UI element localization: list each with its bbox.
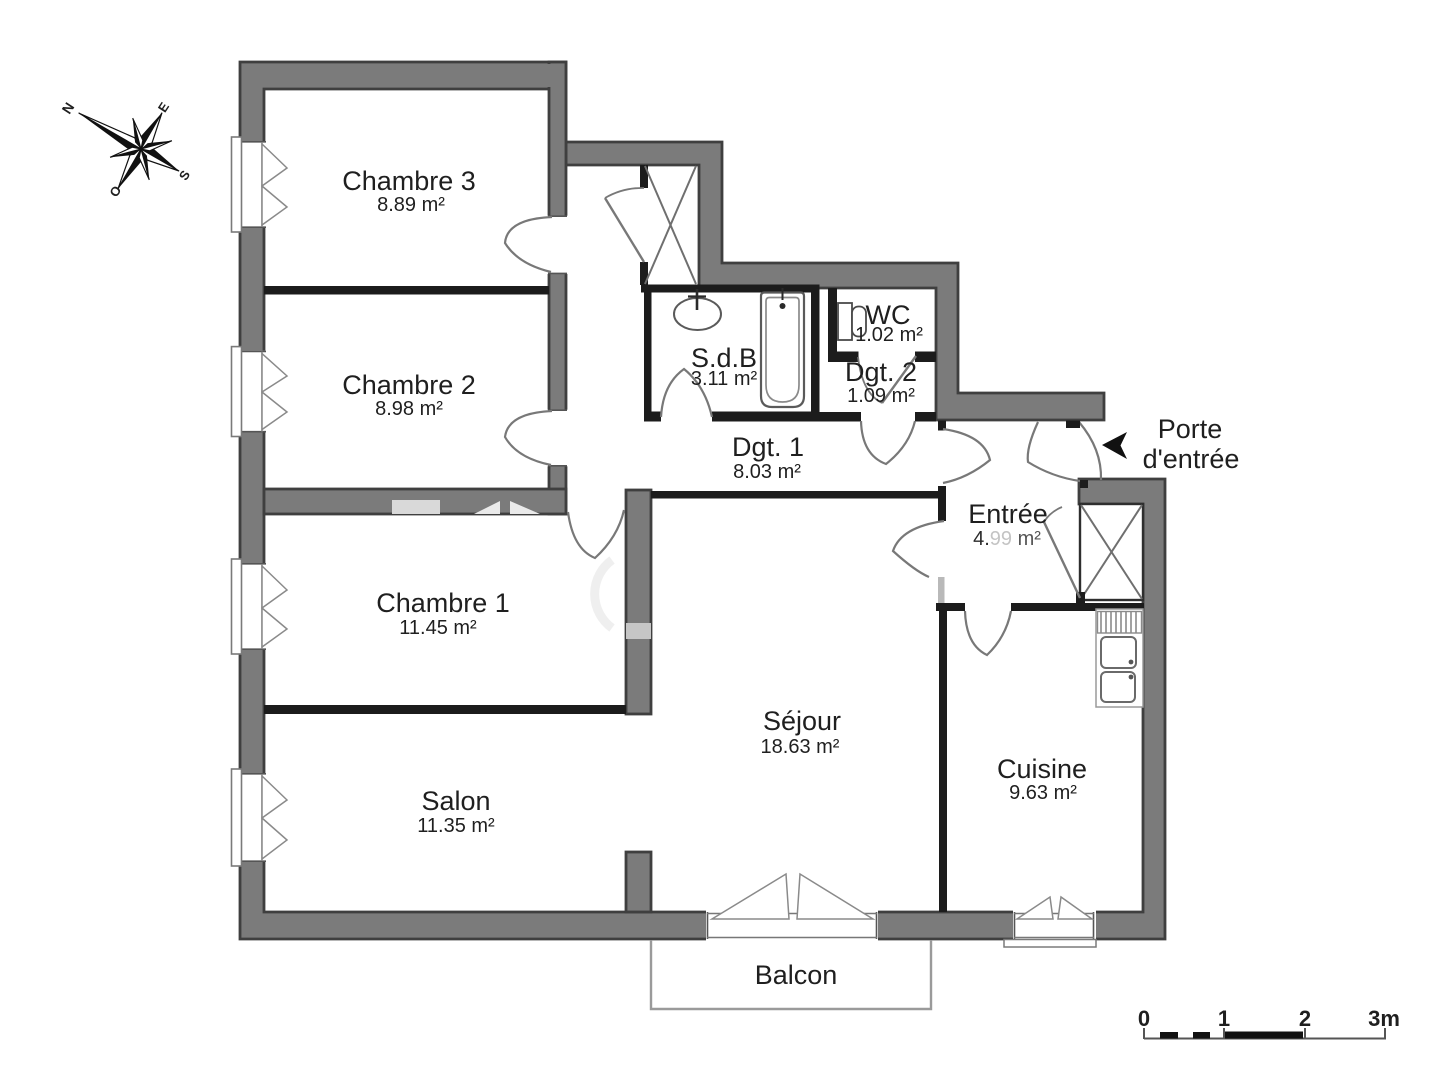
svg-text:3.11 m²: 3.11 m² xyxy=(691,368,758,390)
svg-text:11.35 m²: 11.35 m² xyxy=(417,815,495,837)
svg-text:Chambre 2: Chambre 2 xyxy=(342,370,476,400)
svg-text:Dgt. 1: Dgt. 1 xyxy=(732,432,804,462)
svg-text:Cuisine: Cuisine xyxy=(997,754,1087,784)
svg-text:Porte: Porte xyxy=(1158,414,1223,444)
svg-text:Entrée: Entrée xyxy=(968,499,1048,529)
svg-text:8.89 m²: 8.89 m² xyxy=(377,194,445,216)
svg-text:d'entrée: d'entrée xyxy=(1143,444,1240,474)
svg-text:18.63 m²: 18.63 m² xyxy=(761,736,840,758)
svg-text:4.99 m²: 4.99 m² xyxy=(973,528,1041,550)
svg-text:Séjour: Séjour xyxy=(763,706,841,736)
svg-text:Chambre 3: Chambre 3 xyxy=(342,166,476,196)
svg-text:1.02 m²: 1.02 m² xyxy=(855,324,923,346)
svg-text:2: 2 xyxy=(1299,1006,1311,1031)
svg-text:8.98 m²: 8.98 m² xyxy=(375,398,443,420)
svg-text:0: 0 xyxy=(1138,1006,1150,1031)
svg-text:3m: 3m xyxy=(1368,1006,1400,1031)
svg-text:1: 1 xyxy=(1218,1006,1230,1031)
svg-text:9.63 m²: 9.63 m² xyxy=(1009,782,1077,804)
svg-text:11.45 m²: 11.45 m² xyxy=(399,617,477,639)
svg-text:Balcon: Balcon xyxy=(755,960,838,990)
svg-text:Chambre 1: Chambre 1 xyxy=(376,588,510,618)
svg-text:Salon: Salon xyxy=(421,786,490,816)
svg-text:1.09 m²: 1.09 m² xyxy=(847,385,915,407)
svg-text:8.03 m²: 8.03 m² xyxy=(733,461,801,483)
svg-text:Dgt. 2: Dgt. 2 xyxy=(845,357,917,387)
